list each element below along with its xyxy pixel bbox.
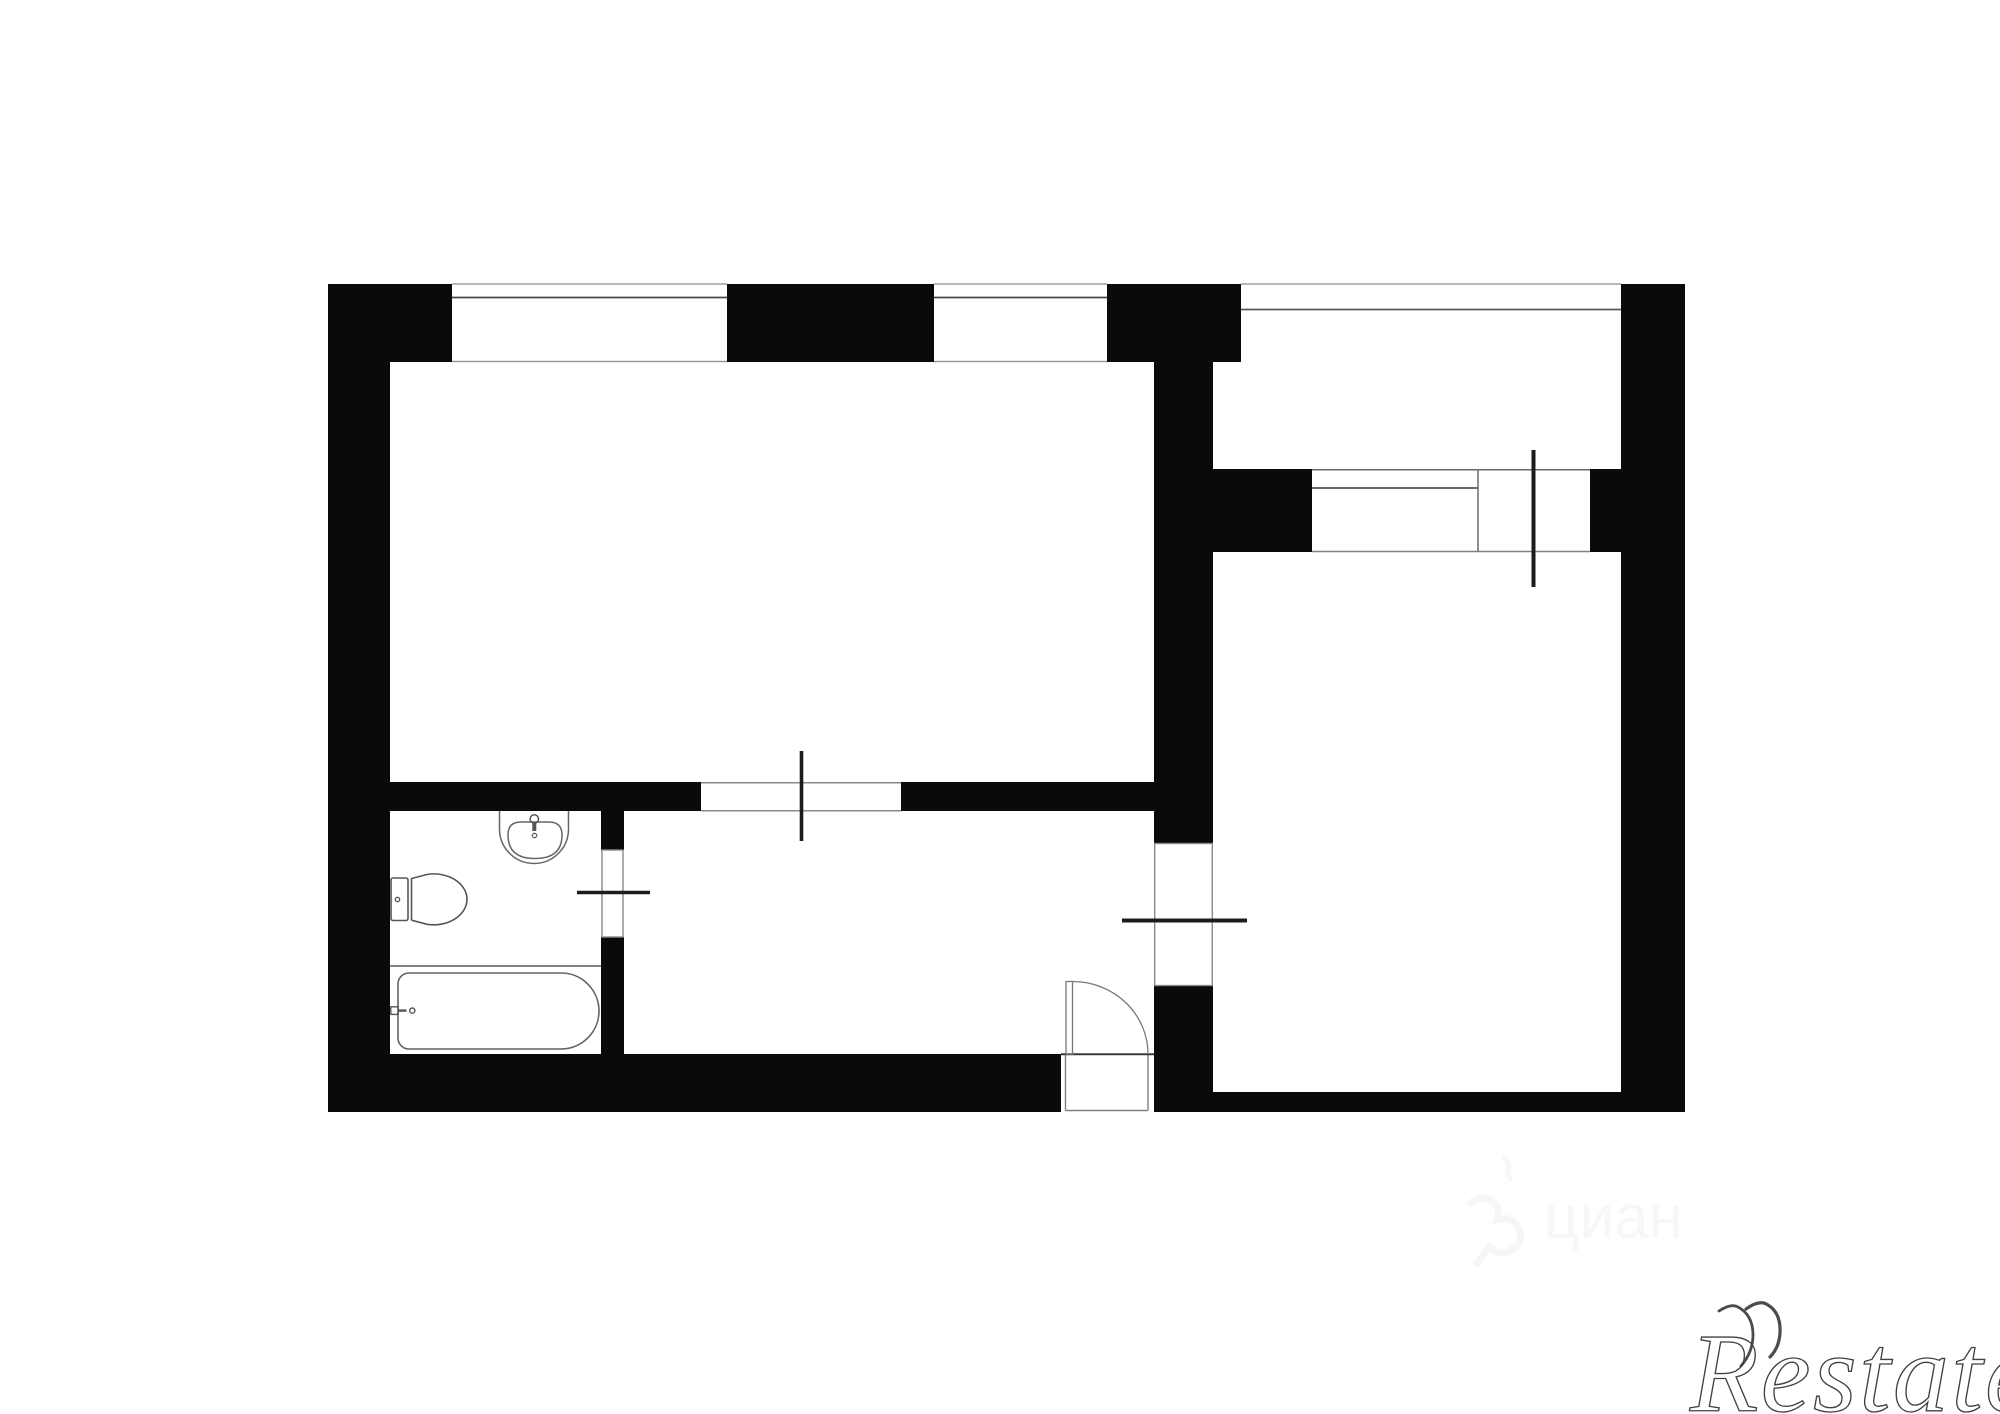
svg-text:Restate: Restate <box>1689 1312 2000 1414</box>
svg-text:циан: циан <box>1544 1183 1683 1252</box>
